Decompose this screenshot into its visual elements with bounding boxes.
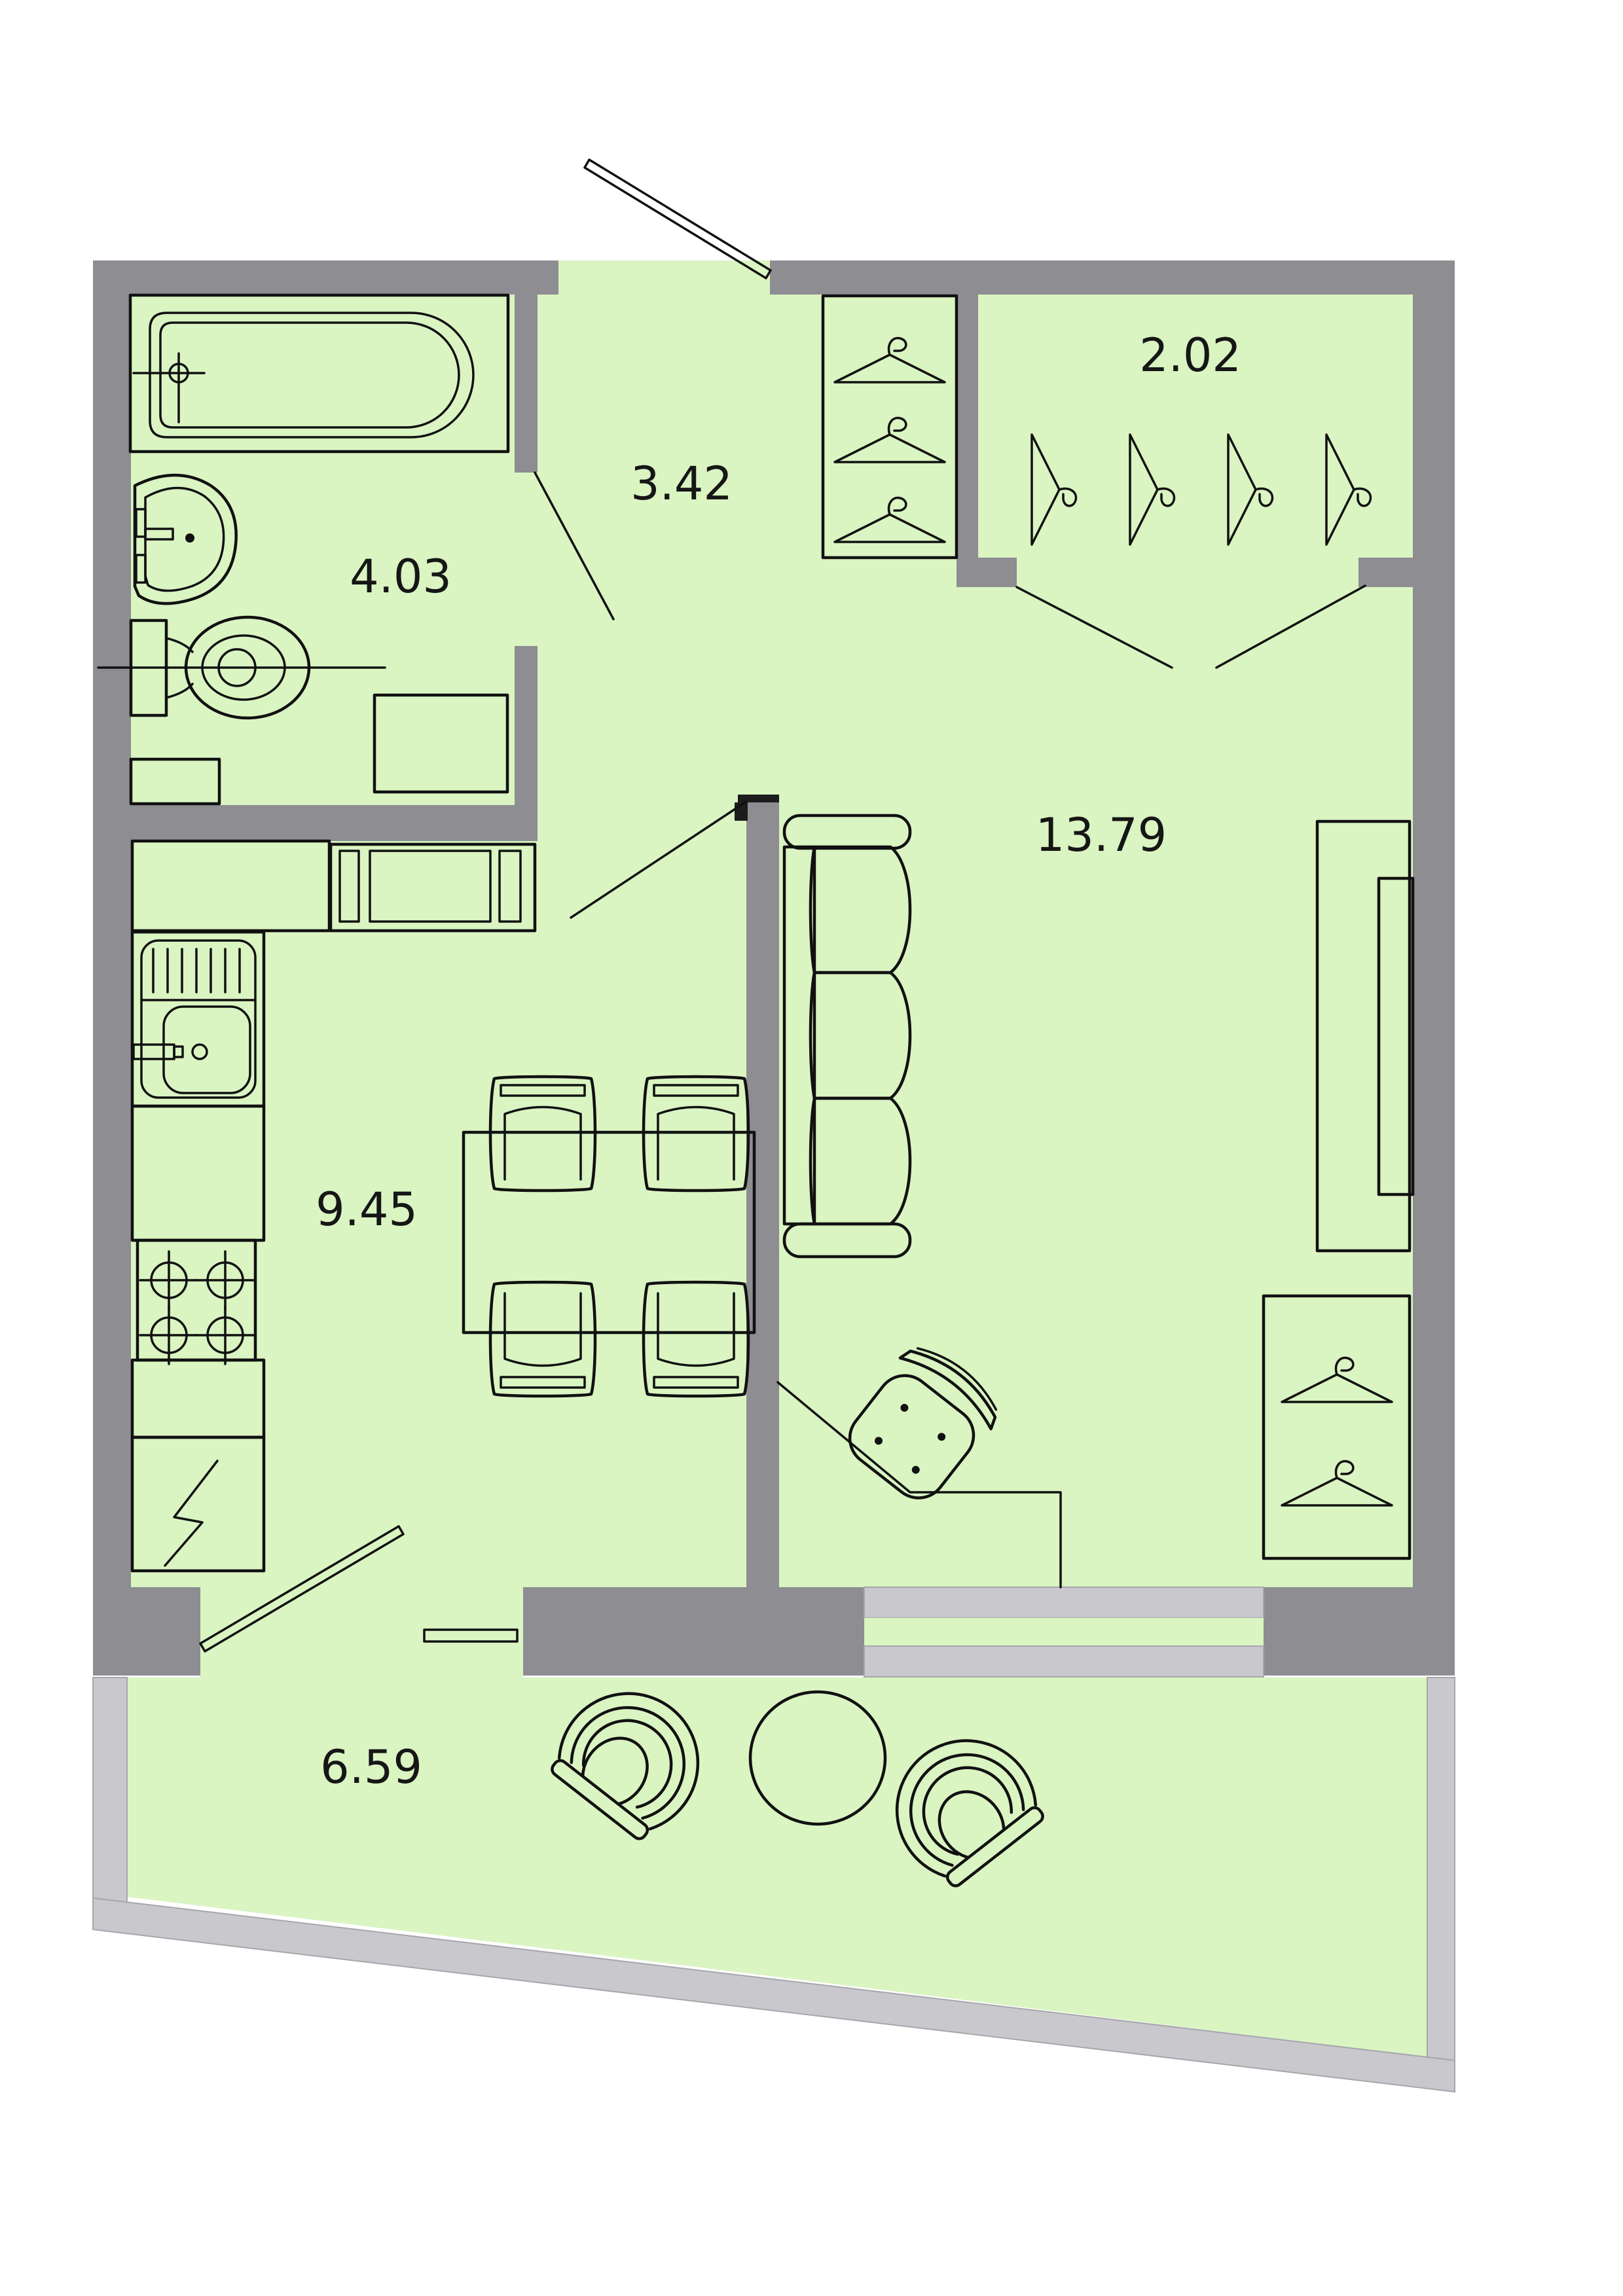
balcony-rail-right <box>1427 1677 1455 2060</box>
wall-bathroom-bottom <box>131 805 538 841</box>
entrance-door-leaf <box>585 160 771 278</box>
hallway-area-label: 3.42 <box>630 457 733 511</box>
wall-central-cap <box>738 795 779 802</box>
closet-area-label: 2.02 <box>1139 329 1241 382</box>
wall-closet-bottom-left <box>957 558 1017 587</box>
balcony-rail-left <box>93 1677 127 1903</box>
wall-right <box>1413 293 1455 1676</box>
wall-bathroom-right-upper <box>515 293 538 473</box>
wall-top-right <box>770 260 1455 295</box>
balcony-area-label: 6.59 <box>320 1740 422 1794</box>
living-room-area-label: 13.79 <box>1036 808 1167 862</box>
wall-central <box>746 797 779 1587</box>
wall-bathroom-right-lower <box>515 646 538 805</box>
living-room-window <box>864 1587 1264 1677</box>
bathroom-area-label: 4.03 <box>350 550 452 603</box>
entrance-gap-floor <box>558 260 770 295</box>
balcony-door-gap-floor <box>200 1587 523 1679</box>
floor-plan: 4.03 3.42 2.02 13.79 9.45 6.59 <box>0 0 1623 2296</box>
kitchen-area-label: 9.45 <box>316 1183 418 1236</box>
wall-closet-left <box>957 293 978 587</box>
wall-left <box>93 260 131 1587</box>
wall-bottom-right <box>1264 1587 1455 1676</box>
wall-top-left <box>93 260 558 295</box>
floor-plan-canvas: 4.03 3.42 2.02 13.79 9.45 6.59 <box>0 0 1623 2296</box>
wall-bottom-pier-left <box>93 1587 200 1676</box>
wall-bottom-mid <box>523 1587 864 1676</box>
wall-closet-bottom-right <box>1359 558 1413 587</box>
